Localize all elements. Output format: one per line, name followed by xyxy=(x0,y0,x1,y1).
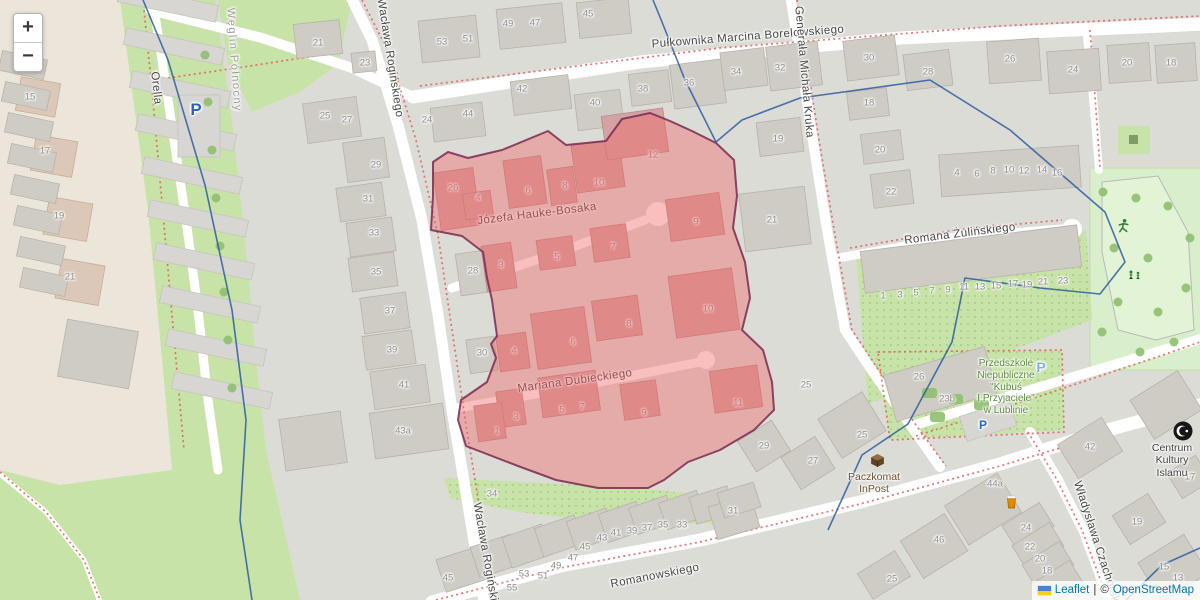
building xyxy=(362,330,416,371)
tree-icon xyxy=(1170,338,1179,347)
tree-icon xyxy=(1110,244,1119,253)
building xyxy=(709,365,762,413)
tree-icon xyxy=(1114,298,1123,307)
tree-icon xyxy=(1099,188,1108,197)
bush-icon xyxy=(948,394,963,404)
building xyxy=(462,190,493,220)
zoom-in-button[interactable]: + xyxy=(14,14,42,43)
building xyxy=(496,3,566,50)
building xyxy=(530,307,591,370)
tree-icon xyxy=(1132,194,1141,203)
building xyxy=(537,370,600,418)
building xyxy=(293,20,342,59)
map-base-graphics xyxy=(0,0,1200,600)
building xyxy=(496,332,531,372)
tree-icon xyxy=(208,146,217,155)
building xyxy=(503,156,547,209)
building xyxy=(466,336,498,374)
tree-icon xyxy=(1154,308,1163,317)
building xyxy=(665,192,724,241)
building xyxy=(348,252,398,292)
building xyxy=(336,182,386,222)
building xyxy=(766,41,823,91)
leaflet-link[interactable]: Leaflet xyxy=(1055,581,1090,600)
building xyxy=(670,59,727,109)
attribution-bar: Leaflet | © OpenStreetMap xyxy=(1032,581,1200,600)
ukraine-flag-icon xyxy=(1038,586,1051,595)
building xyxy=(418,15,480,63)
tree-icon xyxy=(228,384,237,393)
building xyxy=(351,51,377,73)
tree-icon xyxy=(1186,234,1195,243)
building xyxy=(360,292,411,334)
tree-icon xyxy=(1182,284,1191,293)
tree-icon xyxy=(224,336,233,345)
building xyxy=(510,75,572,116)
building xyxy=(843,35,899,81)
attribution-separator: | xyxy=(1093,581,1096,600)
bush-icon xyxy=(974,400,989,410)
building xyxy=(370,364,431,409)
building xyxy=(668,268,740,338)
building xyxy=(720,47,768,90)
building xyxy=(536,236,576,271)
tree-icon xyxy=(204,98,213,107)
tree-icon xyxy=(1144,254,1153,263)
building xyxy=(430,102,486,142)
building xyxy=(1107,43,1152,84)
building xyxy=(58,319,139,389)
building xyxy=(739,186,812,252)
building xyxy=(590,224,630,263)
tree-icon xyxy=(212,194,221,203)
tree-icon xyxy=(201,51,210,60)
bush-icon xyxy=(930,412,945,422)
building xyxy=(756,117,804,156)
building xyxy=(1047,48,1102,94)
building xyxy=(302,96,361,143)
osm-link[interactable]: OpenStreetMap xyxy=(1113,581,1194,600)
building xyxy=(279,411,348,471)
building xyxy=(1155,43,1198,84)
park-gate-icon xyxy=(1129,135,1138,144)
tree-icon xyxy=(1136,348,1145,357)
cul-de-sac xyxy=(697,351,715,369)
map-canvas[interactable]: Pułkownika Marcina BorelowskiegoWacława … xyxy=(0,0,1200,600)
building xyxy=(481,242,517,292)
copyright-symbol: © xyxy=(1100,581,1108,600)
building xyxy=(870,170,914,209)
building xyxy=(474,402,507,442)
tree-icon xyxy=(1098,328,1107,337)
building xyxy=(591,295,642,341)
building xyxy=(547,166,578,205)
building xyxy=(601,108,669,160)
building xyxy=(903,49,953,90)
zoom-out-button[interactable]: − xyxy=(14,43,42,71)
building xyxy=(576,0,631,39)
tree-icon xyxy=(1164,202,1173,211)
building xyxy=(860,130,903,165)
zoom-control: + − xyxy=(13,13,43,72)
building xyxy=(342,137,389,182)
building xyxy=(628,70,672,107)
building xyxy=(369,403,449,459)
building xyxy=(846,88,889,121)
building xyxy=(620,380,661,421)
building xyxy=(346,217,396,257)
building xyxy=(987,38,1042,84)
